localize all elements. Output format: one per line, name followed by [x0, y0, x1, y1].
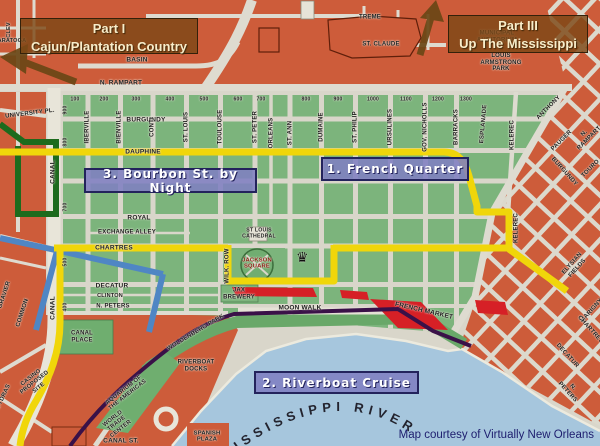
map-label: ST. LOUIS: [184, 112, 191, 142]
map-label: GRAVIER: [0, 281, 13, 310]
map-label: 1300: [460, 97, 472, 103]
map-label: ELYSIAN FIELDS: [561, 252, 589, 281]
map-label: BIENVILLE: [117, 110, 124, 143]
map-label: URSULINES: [388, 109, 395, 145]
map-label: 600: [234, 97, 243, 103]
part1-title: Part I: [21, 20, 197, 38]
stop3-bourbon-st-box[interactable]: 3. Bourbon St. by Night: [84, 168, 257, 193]
map-label: JAX BREWERY: [223, 287, 255, 300]
map-label: 900: [63, 106, 69, 115]
map-label: 500: [200, 97, 209, 103]
map-label: DUMAINE: [319, 112, 326, 141]
crown-icon: ♛: [296, 249, 309, 266]
part1-label-box[interactable]: Part I Cajun/Plantation Country: [20, 18, 198, 54]
map-label: BURGUNDY: [126, 116, 165, 123]
map-label: WILK. ROW: [225, 248, 232, 283]
map-label: POYDRAS: [0, 384, 13, 415]
map-label: EXCHANGE ALLEY: [98, 230, 156, 237]
map-label: JACKSON SQUARE: [242, 258, 272, 271]
map-label: ST LOUIS CATHEDRAL: [242, 228, 276, 239]
map-label: N. PETERS: [555, 374, 585, 405]
map-label: DECATUR: [96, 282, 129, 289]
map-label: CANAL PLACE: [71, 330, 93, 343]
map-label: CANAL: [49, 160, 56, 184]
map-label: FRENCH MARKET: [394, 301, 453, 321]
map-label: 100: [71, 97, 80, 103]
map-label: 1000: [367, 97, 379, 103]
map-label: PAUGER: [550, 129, 573, 152]
map-label: AQUARIUM OF THE AMERICAS: [104, 374, 148, 413]
map-label: 900: [334, 97, 343, 103]
part3-subtitle: Up The Mississippi: [449, 35, 587, 53]
map-label: CASINO PROPOSED SITE: [16, 365, 55, 401]
map-label: COMMON: [15, 298, 30, 328]
part3-label-box[interactable]: Part III Up The Mississippi: [448, 15, 588, 53]
map-label: LOUIS ARMSTRONG PARK: [480, 53, 521, 73]
map-label: DAUPHINE: [125, 148, 161, 155]
map-label: ESPLANADE: [479, 104, 489, 143]
map-label: 200: [100, 97, 109, 103]
map-label: 400: [166, 97, 175, 103]
map-label: ORLEANS: [269, 118, 276, 149]
map-label: SPANISH PLAZA: [194, 431, 221, 444]
map-label: N. PETERS: [96, 304, 129, 311]
map-label: IBERVILLE: [85, 110, 92, 143]
map-label: 400: [63, 303, 69, 312]
map-label: ST. ANN: [288, 121, 295, 146]
map-label: CONTI: [150, 117, 157, 137]
map-label: TOULOUSE: [218, 110, 225, 145]
map-label: GOV. NICHOLLS: [423, 102, 430, 151]
map-label: ANTHONY: [536, 95, 563, 122]
part1-subtitle: Cajun/Plantation Country: [21, 38, 197, 56]
map-label: 800: [63, 138, 69, 147]
new-orleans-tour-map: MISSISSIPPI RIVER TREMEST. CLAUDEMUNICIP…: [0, 0, 600, 446]
map-label: RIVERBOAT DOCKS: [178, 359, 215, 372]
map-label: ST. CLAUDE: [362, 42, 399, 49]
map-label: KELEREC: [514, 213, 521, 243]
map-label: CLINTON: [97, 293, 123, 299]
map-label: DECATUR: [554, 343, 579, 370]
map-label: 300: [132, 97, 141, 103]
map-label: 700: [257, 97, 266, 103]
map-label: WORLD TRADE CENTER: [101, 409, 133, 439]
map-label: N. RAMPART: [571, 120, 600, 151]
map-label: ROYAL: [127, 214, 150, 221]
map-label: CLEV: [6, 22, 12, 37]
map-label: N. RAMPART: [100, 79, 142, 86]
map-label: ST. PHILIP: [353, 111, 360, 143]
map-label: CHARTRES: [576, 315, 600, 345]
map-label: WOLDENBERG PARK: [166, 313, 225, 352]
stop2-riverboat-cruise-box[interactable]: 2. Riverboat Cruise: [254, 371, 419, 394]
map-label: 500: [63, 258, 69, 267]
map-label: CHARTRES: [95, 244, 133, 251]
stop1-french-quarter-box[interactable]: 1. French Quarter: [321, 157, 469, 181]
map-label: TOURO: [581, 159, 600, 180]
map-label: CANAL ST.: [103, 437, 139, 444]
map-label: ST. PETER: [253, 111, 260, 143]
map-label: MARIGNY: [580, 298, 600, 325]
map-label: CANAL: [49, 296, 56, 320]
map-label: 800: [302, 97, 311, 103]
map-label: 1200: [432, 97, 444, 103]
map-label: 1100: [400, 97, 412, 103]
map-label: MOON WALK: [279, 304, 322, 311]
map-label: UNIVERSITY PL.: [5, 108, 55, 121]
part3-title: Part III: [449, 17, 587, 35]
map-label: BARRACKS: [454, 109, 461, 145]
map-label: BASIN: [126, 56, 147, 63]
map-label: 700: [63, 203, 69, 212]
map-label: KELEREC: [510, 120, 517, 150]
map-credit: Map courtesy of Virtually New Orleans: [399, 429, 594, 441]
map-label: TREME: [359, 15, 381, 22]
map-label: BURGUNDY: [549, 156, 578, 187]
